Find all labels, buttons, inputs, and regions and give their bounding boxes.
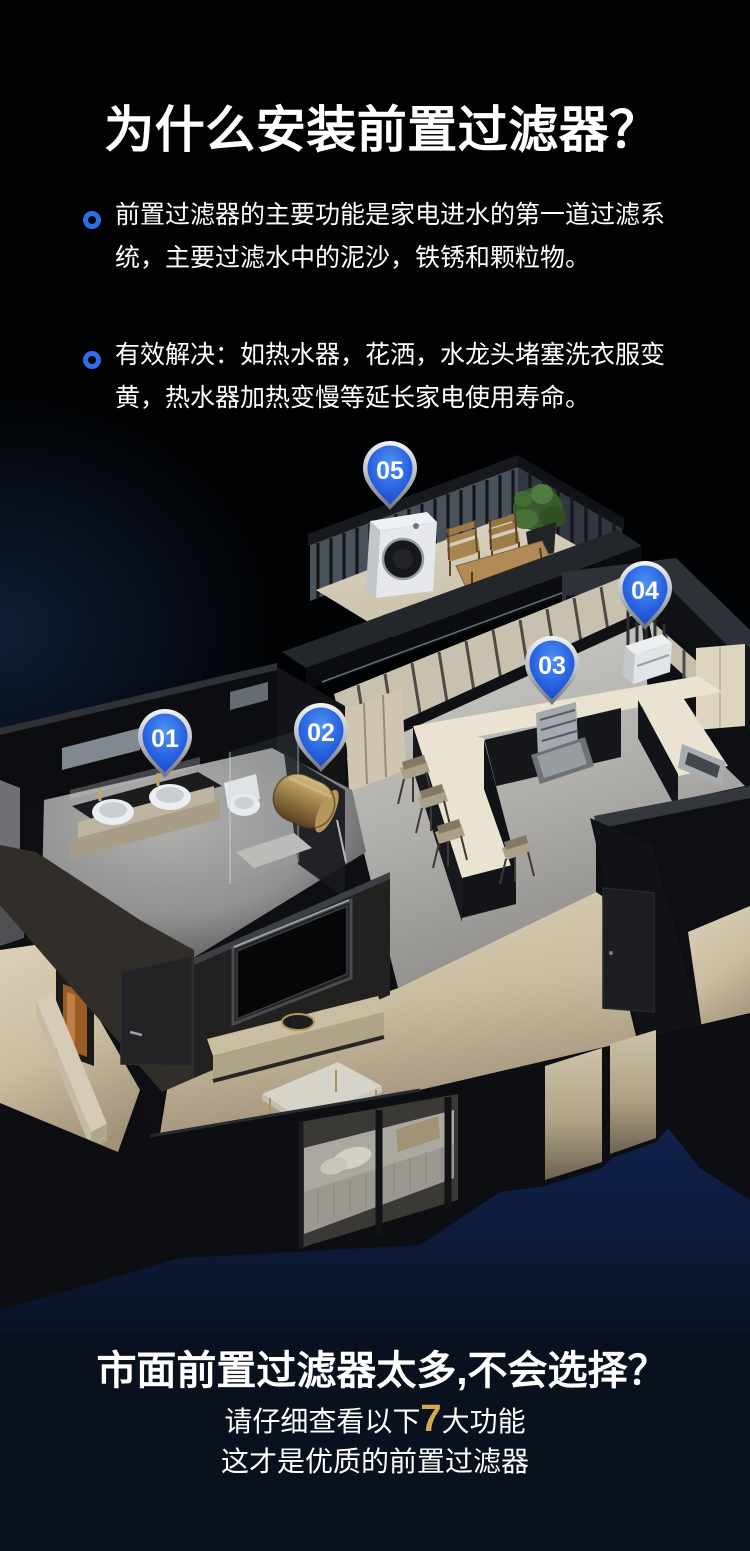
svg-text:04: 04 bbox=[631, 577, 659, 605]
svg-text:03: 03 bbox=[538, 652, 566, 680]
svg-text:01: 01 bbox=[151, 725, 179, 753]
svg-text:05: 05 bbox=[376, 457, 404, 485]
svg-text:02: 02 bbox=[307, 719, 335, 747]
